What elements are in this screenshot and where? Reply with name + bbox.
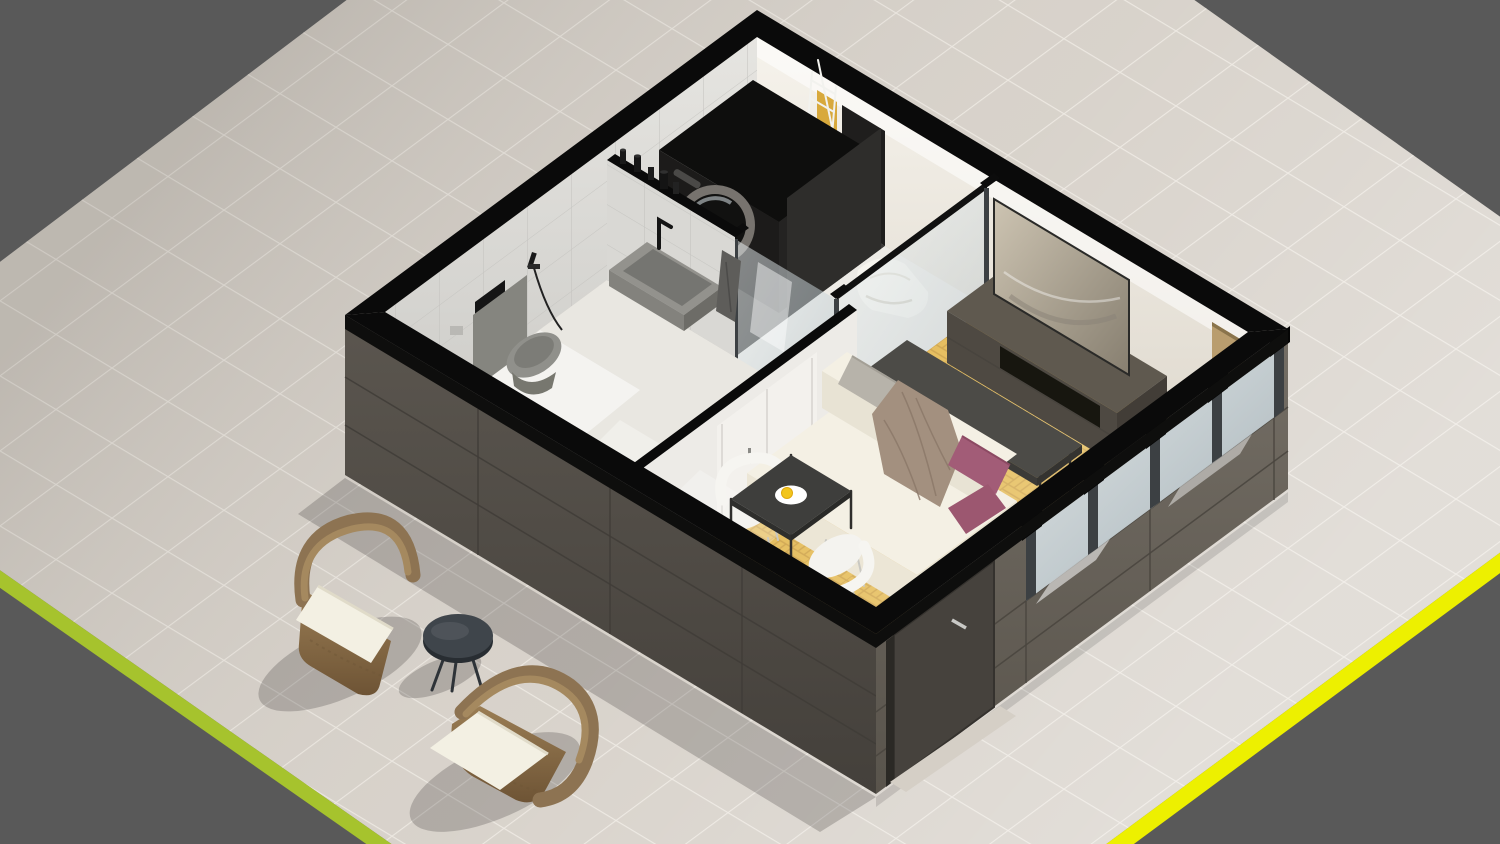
isometric-apartment-render — [0, 0, 1500, 844]
egg-yolk — [782, 488, 793, 499]
toilet-paper-holder — [450, 326, 463, 335]
door-frame — [886, 635, 894, 787]
scene-canvas — [0, 0, 1500, 844]
